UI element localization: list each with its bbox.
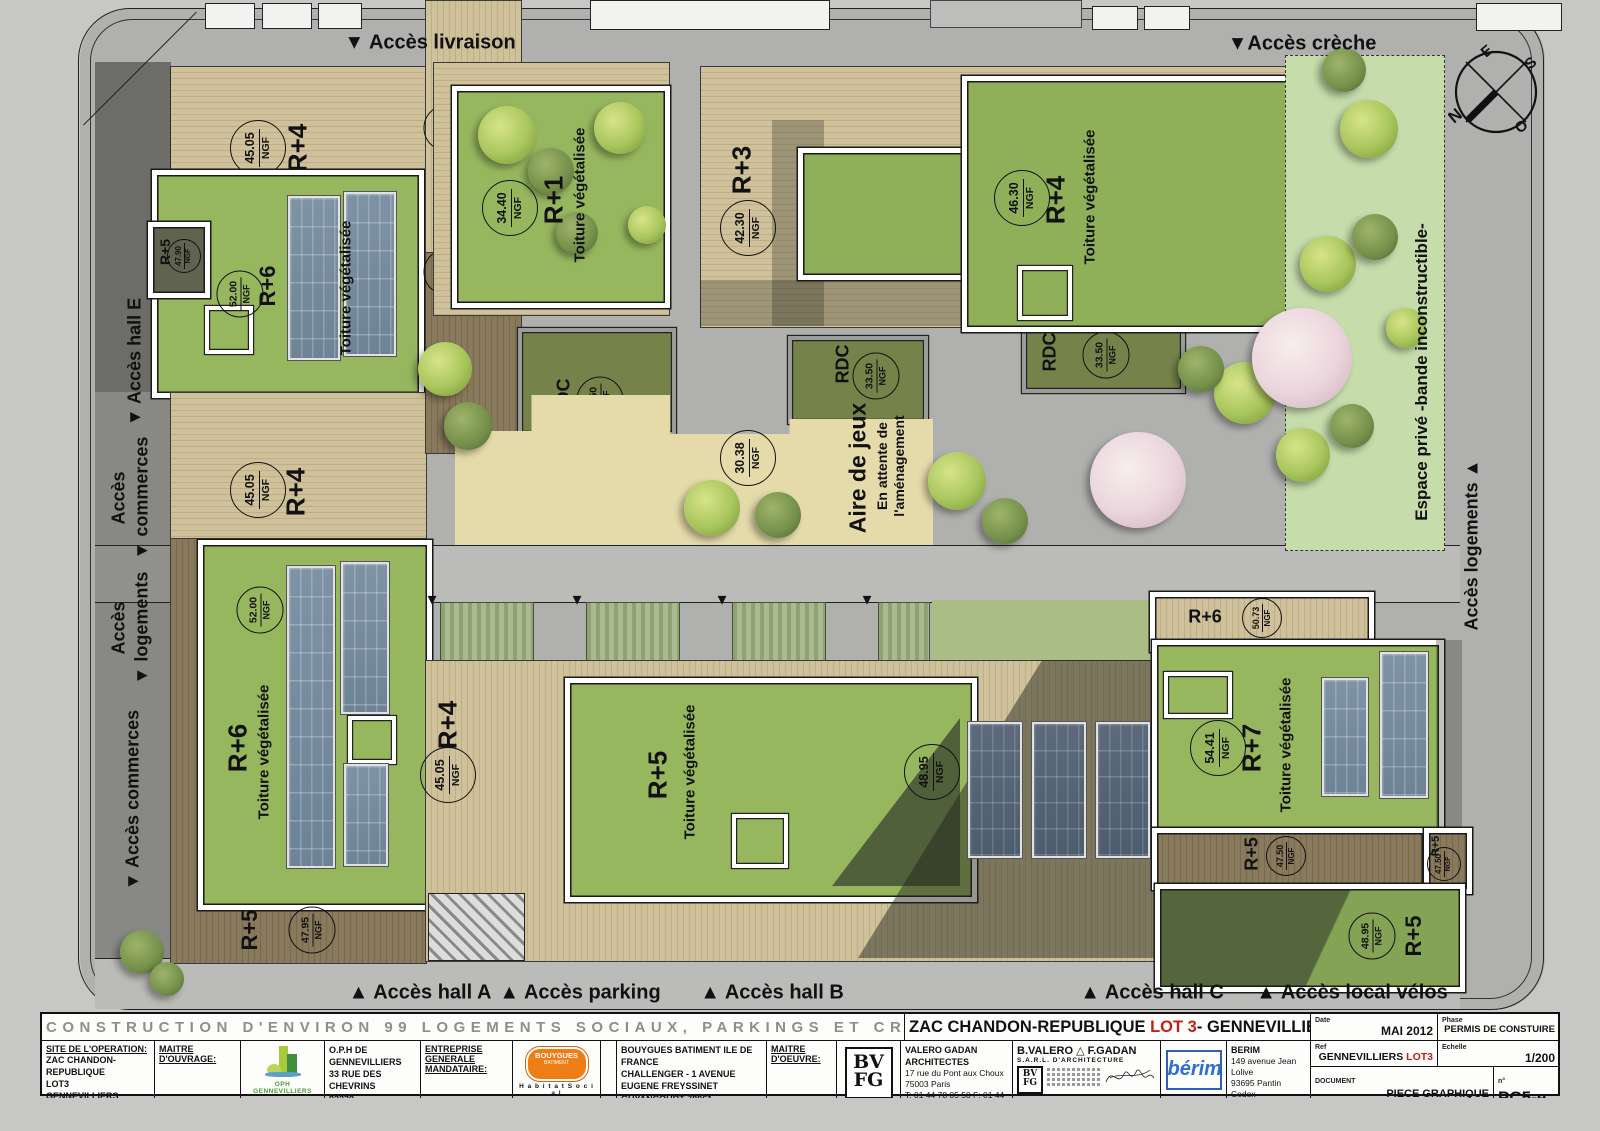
meta-phase: PERMIS DE CONSTUIRE [1442, 1024, 1555, 1035]
bvfg-logo-small: BV FG [1017, 1066, 1043, 1094]
compass-east: E [1478, 44, 1497, 61]
tree [418, 342, 472, 396]
meta-document-cell: DOCUMENT PIECE GRAPHIQUE PLAN DES TOITUR… [1310, 1067, 1493, 1098]
tree [1300, 236, 1356, 292]
project-location-cell: ZAC CHANDON-REPUBLIQUE LOT 3- GENNEVILLI… [904, 1014, 1310, 1041]
left-arrow-icon: ▲ [1462, 460, 1482, 478]
architects-cell: B.VALERO △ F.GADAN S.A.R.L. D'ARCHITECTU… [1012, 1041, 1160, 1098]
access-label-creche: ▼Accès crèche [1228, 33, 1377, 56]
berim-line: 93695 Pantin Cedex [1231, 1078, 1306, 1098]
tree [444, 402, 492, 450]
moa-heading: MAITRE D'OUVRAGE: [159, 1044, 236, 1064]
moe-line: T: 01 44 78 05 50 F: 01 44 78 00 93 [905, 1090, 1008, 1098]
hedge [732, 602, 826, 664]
moa-line: O.P.H DE GENNEVILLIERS [329, 1044, 416, 1068]
playground-subtitle: En attente de [874, 422, 890, 510]
tree-blossom [1252, 308, 1352, 408]
ngf-badge: 47.50 NGF [1427, 847, 1461, 881]
neighbour-block [262, 3, 312, 29]
down-arrow-icon: ▼ [344, 32, 364, 54]
neighbour-block [930, 0, 1082, 28]
building-level: R+6 [223, 724, 254, 772]
architect-subtitle: S.A.R.L. D'ARCHITECTURE [1017, 1057, 1156, 1064]
site-line: GENNEVILLIERS [46, 1090, 150, 1098]
bouygues-logo-sub: H a b i t a t S o c i a l [517, 1083, 596, 1097]
neighbour-block [1092, 6, 1138, 30]
berim-logo: bérim [1166, 1050, 1222, 1090]
building-level: R+4 [1041, 176, 1072, 224]
moa-line: 92230 GENNEVILLIERS [329, 1093, 416, 1098]
right-arrow-icon: ▼ [131, 667, 151, 685]
compass-south: S [1522, 54, 1541, 73]
ent-line: CHALLENGER - 1 AVENUE EUGENE FREYSSINET [621, 1068, 762, 1092]
moe-heading-cell: MAITRE D'OEUVRE: [766, 1041, 836, 1098]
up-arrow-icon: ▲ [499, 982, 519, 1004]
meta-date: MAI 2012 [1315, 1024, 1433, 1038]
up-arrow-icon: ▲ [349, 982, 369, 1004]
neighbour-block [590, 0, 830, 30]
entreprise-heading: ENTREPRISE GENERALEMANDATAIRE: [425, 1044, 508, 1074]
access-label-hall-e: ▼ Accès hall E [125, 298, 146, 426]
road-arrow-icon: ▼ [860, 592, 875, 609]
building-level: R+5 [237, 910, 263, 951]
right-arrow-icon: ▼ [125, 408, 145, 426]
title-block: CONSTRUCTION D'ENVIRON 99 LOGEMENTS SOCI… [40, 1012, 1560, 1096]
roof-vent [348, 716, 396, 764]
roof-note: Toiture végétalisée [1082, 130, 1099, 265]
building-level: RDC [1040, 333, 1061, 372]
building-level: R+5 [1242, 837, 1263, 871]
entreprise-heading-cell: ENTREPRISE GENERALEMANDATAIRE: [420, 1041, 512, 1098]
ngf-badge: 52.00 NGF [237, 587, 284, 634]
playground-title: Aire de jeux [845, 403, 872, 533]
meta-ref: GENNEVILLIERS [1319, 1051, 1407, 1063]
road-arrow-icon: ▼ [425, 592, 440, 609]
meta-ref-cell: Ref GENNEVILLIERS LOT3 [1310, 1041, 1437, 1067]
building-level: R+7 [1237, 724, 1268, 772]
access-label-hall-b: ▲ Accès hall B [700, 982, 844, 1005]
moe-line: 75003 Paris [905, 1079, 1008, 1090]
ngf-badge: 30.38 NGF [720, 430, 776, 486]
down-arrow-icon: ▼ [1228, 33, 1248, 55]
ngf-badge: 34.40 NGF [482, 180, 538, 236]
bouygues-address-cell: BOUYGUES BATIMENT ILE DE FRANCE CHALLENG… [616, 1041, 766, 1098]
solar-panel [1096, 722, 1150, 858]
hedge [878, 602, 930, 664]
roof-note: Toiture végétalisée [1278, 678, 1295, 813]
tree [1276, 428, 1330, 482]
building-level: R+6 [1188, 607, 1222, 628]
site-line: ZAC CHANDON-REPUBLIQUE [46, 1054, 150, 1078]
project-title: CONSTRUCTION D'ENVIRON 99 LOGEMENTS SOCI… [46, 1019, 904, 1036]
right-arrow-icon: ▼ [123, 872, 143, 890]
tree [755, 492, 801, 538]
solar-panel [287, 566, 335, 868]
berim-line: BERIM [1231, 1044, 1306, 1056]
signature [1104, 1064, 1156, 1090]
meta-phase-cell: Phase PERMIS DE CONSTUIRE [1437, 1014, 1559, 1041]
site-cell: SITE DE L'OPERATION: ZAC CHANDON-REPUBLI… [42, 1041, 154, 1098]
solar-panel [288, 196, 340, 360]
solar-panel [341, 562, 389, 714]
ngf-badge: 45.05 NGF [230, 120, 286, 176]
solar-panel [1322, 678, 1368, 796]
ngf-badge: 42.30 NGF [720, 200, 776, 256]
moe-line: VALERO GADAN ARCHITECTES [905, 1044, 1008, 1068]
ngf-badge: 48.95 NGF [904, 744, 960, 800]
tree [982, 498, 1028, 544]
up-arrow-icon: ▲ [1080, 982, 1100, 1004]
tree [150, 962, 184, 996]
ngf-badge: 50.73 NGF [1242, 598, 1282, 638]
ngf-badge: 47.90 NGF [167, 239, 201, 273]
moa-heading-cell: MAITRE D'OUVRAGE: [154, 1041, 240, 1098]
right-arrow-icon: ▼ [131, 542, 151, 560]
architect-names: B.VALERO △ F.GADAN [1017, 1044, 1156, 1057]
ngf-badge: 48.95 NGF [1349, 913, 1396, 960]
berim-line: 149 avenue Jean Lolive [1231, 1056, 1306, 1078]
tree [1352, 214, 1398, 260]
meta-document-label: DOCUMENT [1315, 1078, 1355, 1085]
playground-subtitle: l'aménagement [891, 415, 907, 516]
parking-ramp-hatch [428, 893, 525, 961]
ent-line: GUYANCOURT 78061 [621, 1093, 762, 1098]
roof-note: Toiture végétalisée [682, 705, 699, 840]
compass-rose: E S N O [1448, 44, 1544, 140]
moa-address-cell: O.P.H DE GENNEVILLIERS 33 RUE DES CHEVRI… [324, 1041, 420, 1098]
ent-line: BOUYGUES BATIMENT ILE DE FRANCE [621, 1044, 762, 1068]
meta-phase-label: Phase [1442, 1017, 1555, 1024]
valero-address-cell: VALERO GADAN ARCHITECTES 17 rue du Pont … [900, 1041, 1012, 1098]
building-level: R+4 [281, 468, 312, 516]
neighbour-block [1144, 6, 1190, 30]
project-title-cell: CONSTRUCTION D'ENVIRON 99 LOGEMENTS SOCI… [42, 1014, 904, 1041]
tree [684, 480, 740, 536]
lawn-strip [932, 600, 1167, 664]
road-arrow-icon: ▼ [715, 592, 730, 609]
neighbour-block [1476, 3, 1562, 31]
road-arrow-icon: ▼ [570, 592, 585, 609]
bouygues-logo: BOUYGUES BATIMENT [526, 1047, 588, 1081]
meta-date-cell: Date MAI 2012 [1310, 1014, 1437, 1041]
moe-heading: MAITRE D'OEUVRE: [771, 1044, 832, 1064]
oph-logo-text: OPH GENNEVILLIERS [245, 1081, 320, 1095]
solar-panel [1032, 722, 1086, 858]
solar-panel [968, 722, 1022, 858]
ngf-badge: 33.50 NGF [1083, 332, 1130, 379]
hedge [586, 602, 680, 664]
up-arrow-icon: ▲ [1256, 982, 1276, 1004]
building-level: R+4 [433, 701, 464, 749]
access-label-commerces-2: ▼ Accès commerces [123, 710, 144, 890]
tree-blossom [1090, 432, 1186, 528]
tree [594, 102, 646, 154]
solar-panel [1380, 652, 1428, 798]
document-type: PIECE GRAPHIQUE [1315, 1088, 1489, 1098]
meta-number-cell: n° PC5-e [1493, 1067, 1559, 1098]
roof-plan-sheet: 45.05 NGF R+4 52.00 NGF R+6 Toiture végé… [0, 0, 1600, 1131]
access-label-hall-c: ▲ Accès hall C [1080, 982, 1224, 1005]
access-label-livraison: ▼ Accès livraison [344, 32, 515, 55]
building-level: R+6 [255, 266, 281, 307]
bvfg-logo: BV FG [845, 1047, 893, 1098]
roof-note: Toiture végétalisée [338, 221, 355, 356]
tree [1330, 404, 1374, 448]
meta-date-label: Date [1315, 1017, 1433, 1024]
roof-vent [1018, 266, 1072, 320]
location-suffix: - GENNEVILLIERS [1197, 1018, 1310, 1036]
site-heading: SITE DE L'OPERATION: [46, 1044, 150, 1054]
building-level: R+5 [1401, 916, 1427, 957]
berim-logo-cell: bérim [1160, 1041, 1226, 1098]
meta-scale-cell: Echelle 1/200 [1437, 1041, 1559, 1067]
access-label-commerces-1: Accès ▼ commerces [108, 437, 153, 560]
compass-west: O [1512, 116, 1532, 137]
tree [1340, 100, 1398, 158]
location-lot: LOT 3 [1150, 1018, 1197, 1036]
tree [628, 206, 666, 244]
building-level: R+4 [283, 124, 314, 172]
stamp-illegible-text [1047, 1066, 1100, 1088]
tree [478, 106, 536, 164]
building-level: R+1 [539, 176, 570, 224]
private-band-label: Espace privé -bande inconstructible- [1412, 223, 1432, 521]
meta-ref-lot: LOT3 [1406, 1051, 1433, 1063]
meta-ref-label: Ref [1315, 1044, 1433, 1051]
bvfg-logo-cell: BV FG [836, 1041, 900, 1098]
up-arrow-icon: ▲ [700, 982, 720, 1004]
oph-logo-cell: OPH GENNEVILLIERS [240, 1041, 324, 1098]
building-level: R+3 [727, 146, 758, 194]
meta-scale: 1/200 [1442, 1051, 1555, 1065]
access-label-parking: ▲ Accès parking [499, 982, 660, 1005]
berim-address-cell: BERIM 149 avenue Jean Lolive 93695 Panti… [1226, 1041, 1310, 1098]
roof-vent [1164, 672, 1232, 718]
neighbour-block [205, 3, 255, 29]
moa-line: 33 RUE DES CHEVRINS [329, 1068, 416, 1092]
sheet-number: PC5-e [1498, 1088, 1555, 1098]
oph-logo [263, 1046, 303, 1080]
meta-scale-label: Echelle [1442, 1044, 1555, 1051]
site-line: LOT3 [46, 1078, 150, 1090]
tree [928, 452, 986, 510]
building-level: R+5 [643, 751, 674, 799]
idf-cell: ILE DE FRANCE [600, 1041, 616, 1098]
access-label-logements-left: Accès ▼ logements [108, 572, 153, 685]
ngf-badge: 47.50 NGF [1266, 836, 1306, 876]
roof-note: Toiture végétalisée [256, 685, 273, 820]
meta-number-label: n° [1498, 1078, 1505, 1085]
roof-vent [732, 814, 788, 868]
moe-line: 17 rue du Pont aux Choux [905, 1068, 1008, 1079]
roof-note: Toiture végétalisée [572, 128, 589, 263]
ngf-badge: 45.05 NGF [230, 462, 286, 518]
ngf-badge: 45.05 NGF [420, 747, 476, 803]
access-label-velos: ▲ Accès local vélos [1256, 982, 1447, 1005]
access-label-logements-right: Accès logements ▲ [1462, 460, 1483, 631]
bouygues-logo-cell: BOUYGUES BATIMENT H a b i t a t S o c i … [512, 1041, 600, 1098]
tree [1178, 346, 1224, 392]
solar-panel [344, 764, 388, 866]
neighbour-block [318, 3, 362, 29]
access-label-hall-a: ▲ Accès hall A [349, 982, 492, 1005]
ngf-badge: 33.50 NGF [853, 353, 900, 400]
location-prefix: ZAC CHANDON-REPUBLIQUE [909, 1018, 1150, 1036]
ngf-badge: 47.95 NGF [289, 907, 336, 954]
hedge [440, 602, 534, 664]
building-level: RDC [833, 345, 854, 384]
